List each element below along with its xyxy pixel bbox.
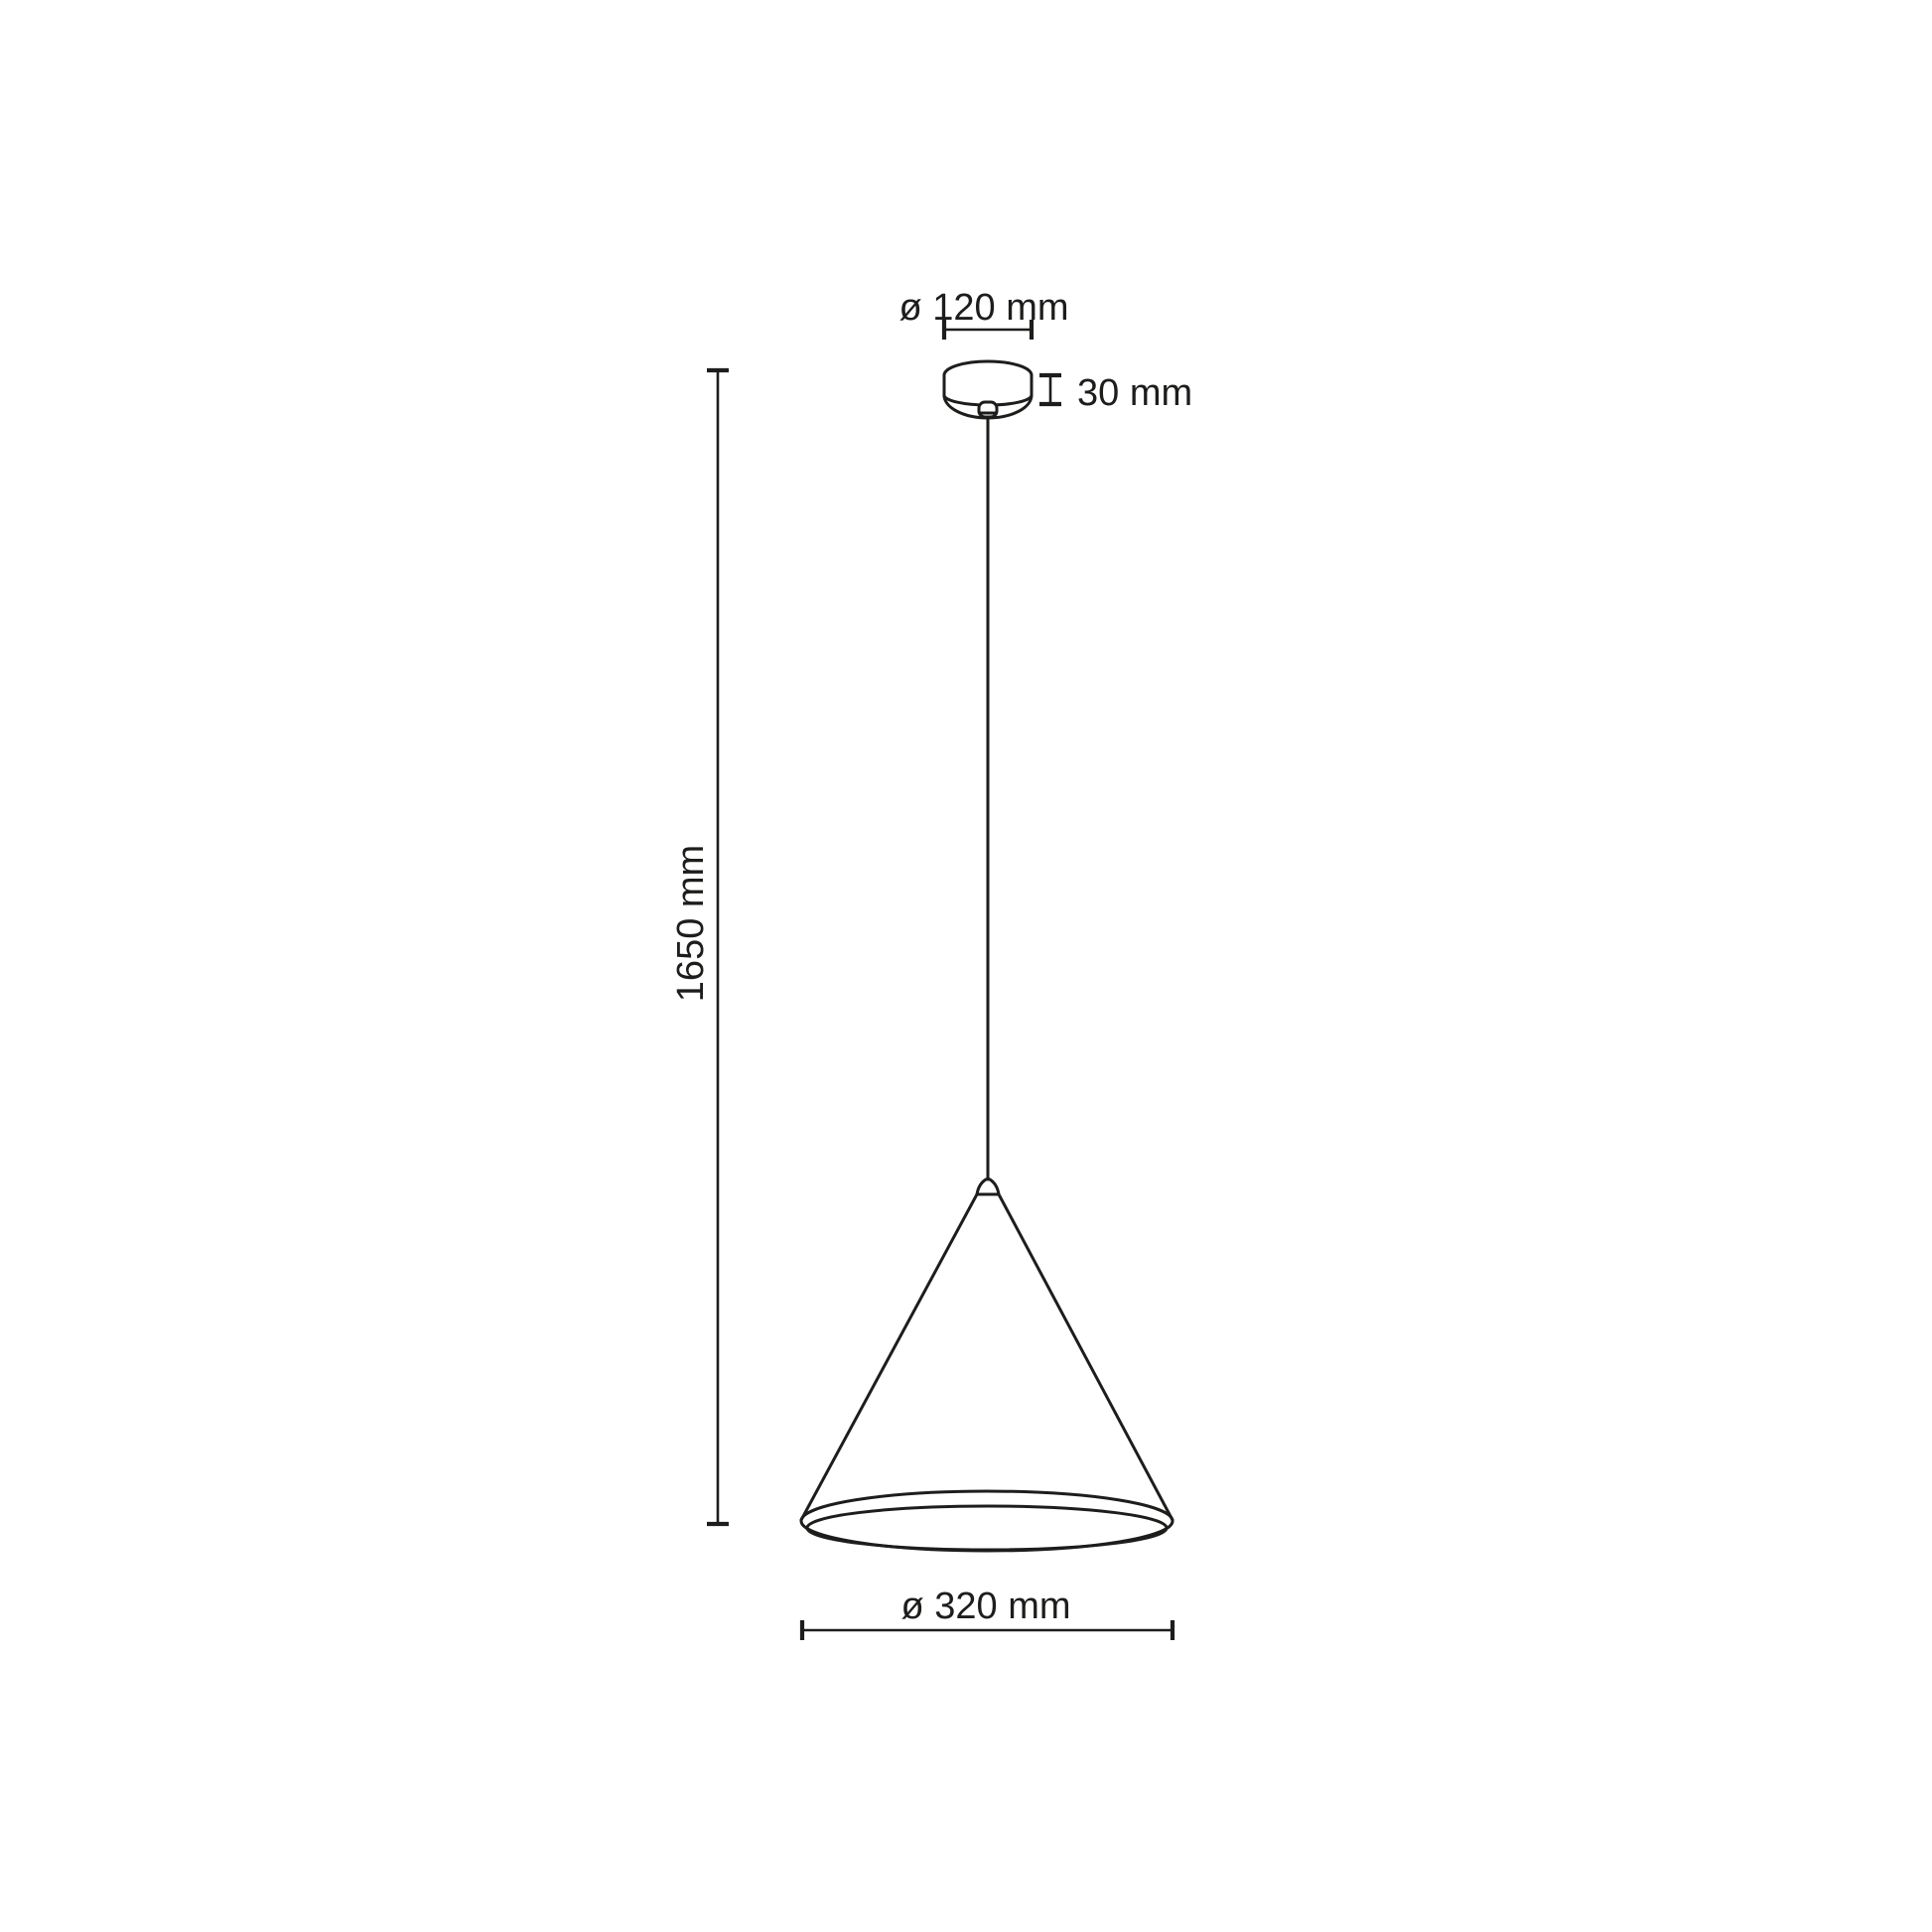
canopy-diameter-dimension: ø 120 mm <box>898 287 1068 340</box>
canopy-outline <box>944 361 1032 418</box>
shade-diameter-label: ø 320 mm <box>900 1586 1070 1627</box>
shade-rim-inner-ellipse <box>807 1506 1167 1550</box>
canopy-height-label: 30 mm <box>1077 372 1192 414</box>
cone-shade-outline <box>801 1178 1173 1551</box>
shade-diameter-dimension: ø 320 mm <box>802 1586 1173 1640</box>
canopy-diameter-label: ø 120 mm <box>898 287 1068 329</box>
total-height-label: 1650 mm <box>670 845 712 1002</box>
technical-drawing-page: ø 120 mm 30 mm 1650 mm ø 320 mm <box>0 0 1932 1932</box>
total-height-dimension: 1650 mm <box>670 370 729 1524</box>
cord-grip <box>979 402 997 417</box>
cone-right-slant <box>999 1194 1173 1520</box>
cone-left-slant <box>801 1194 977 1520</box>
canopy-height-dimension: 30 mm <box>1039 372 1192 414</box>
pendant-lamp-dimension-drawing: ø 120 mm 30 mm 1650 mm ø 320 mm <box>0 0 1932 1932</box>
canopy-top-arc <box>944 361 1032 375</box>
